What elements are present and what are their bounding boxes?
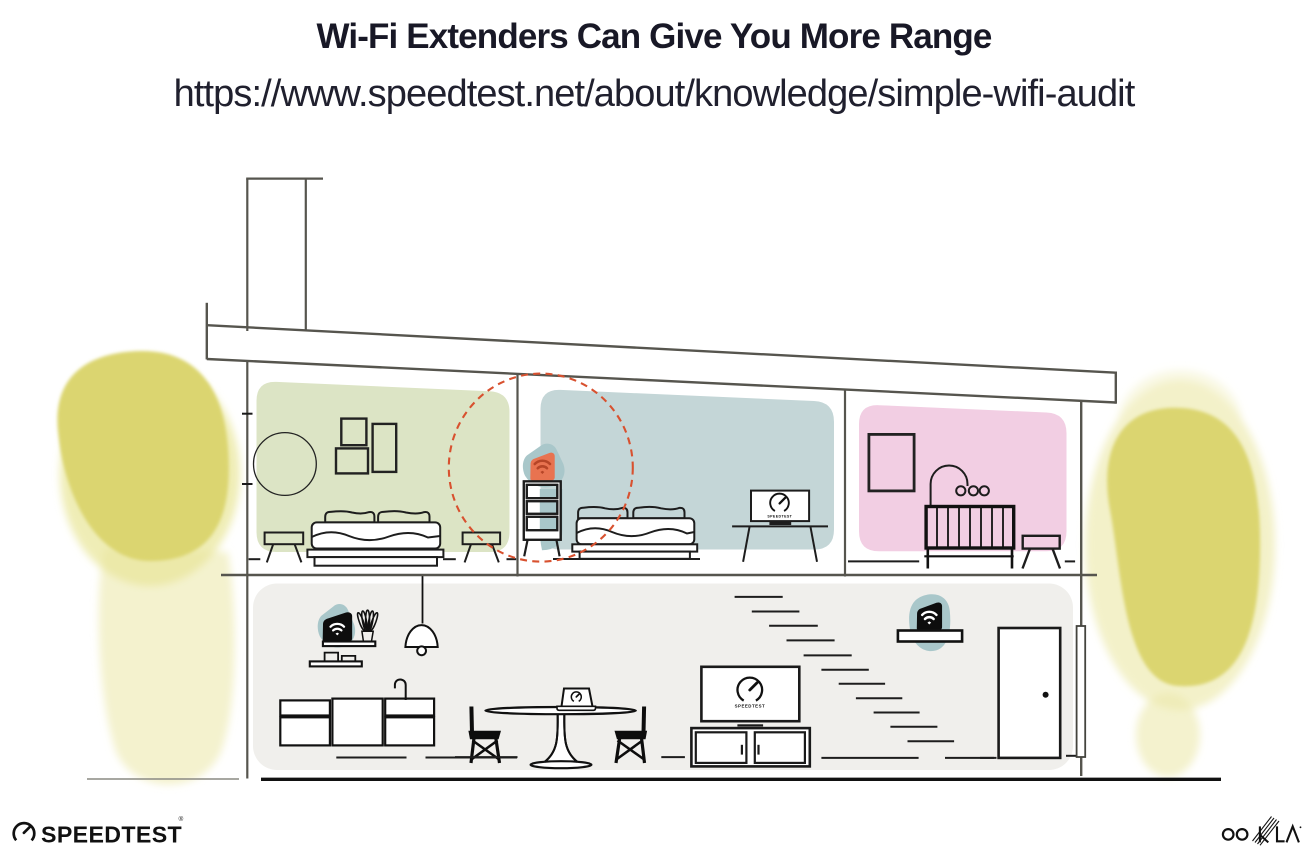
- svg-text:SPEEDTEST: SPEEDTEST: [735, 703, 766, 708]
- svg-text:SPEEDTEST: SPEEDTEST: [767, 515, 792, 519]
- svg-text:®: ®: [179, 815, 184, 823]
- svg-text:SPEEDTEST: SPEEDTEST: [41, 822, 182, 848]
